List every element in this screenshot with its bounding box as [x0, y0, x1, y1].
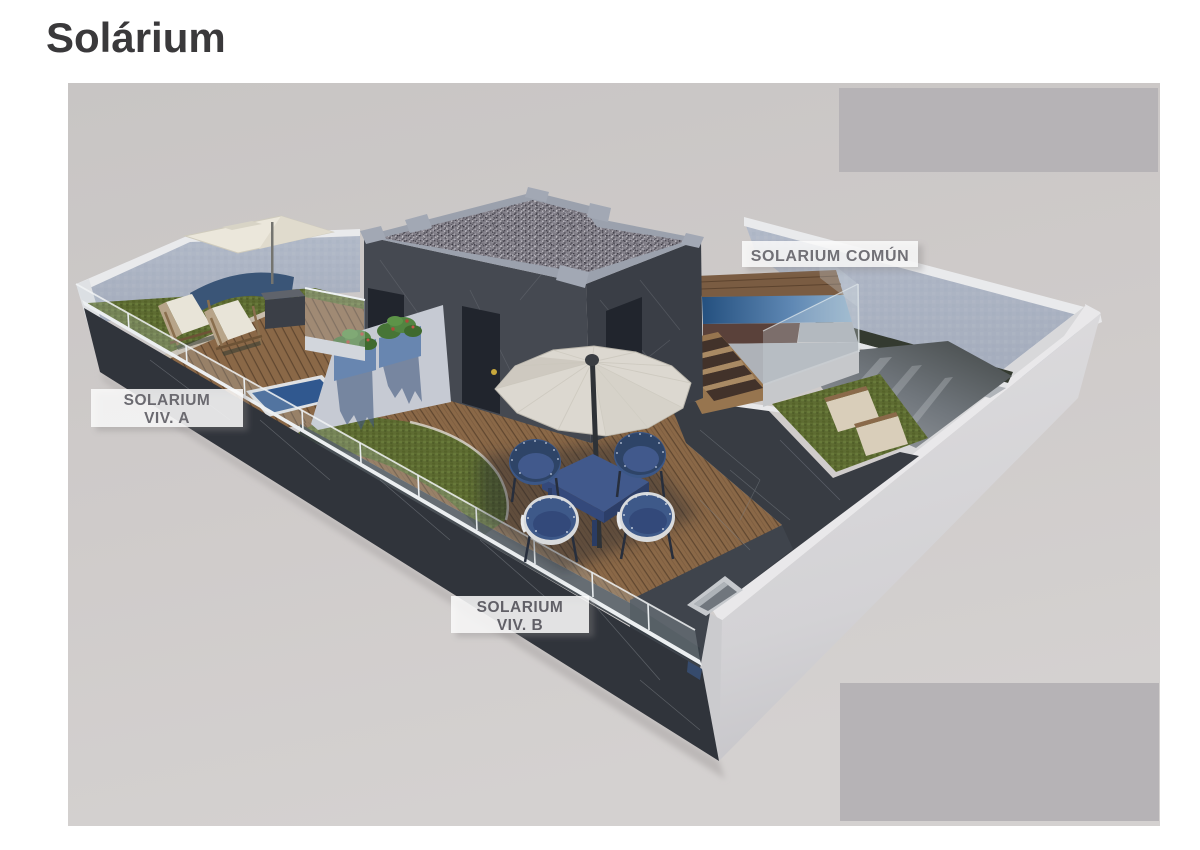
svg-text:SOLARIUM: SOLARIUM	[477, 599, 564, 616]
svg-text:VIV. B: VIV. B	[497, 617, 543, 634]
svg-text:SOLARIUM: SOLARIUM	[124, 392, 211, 409]
svg-text:SOLARIUM COMÚN: SOLARIUM COMÚN	[751, 246, 910, 265]
svg-text:Solárium: Solárium	[46, 14, 226, 61]
svg-text:VIV. A: VIV. A	[144, 410, 190, 427]
